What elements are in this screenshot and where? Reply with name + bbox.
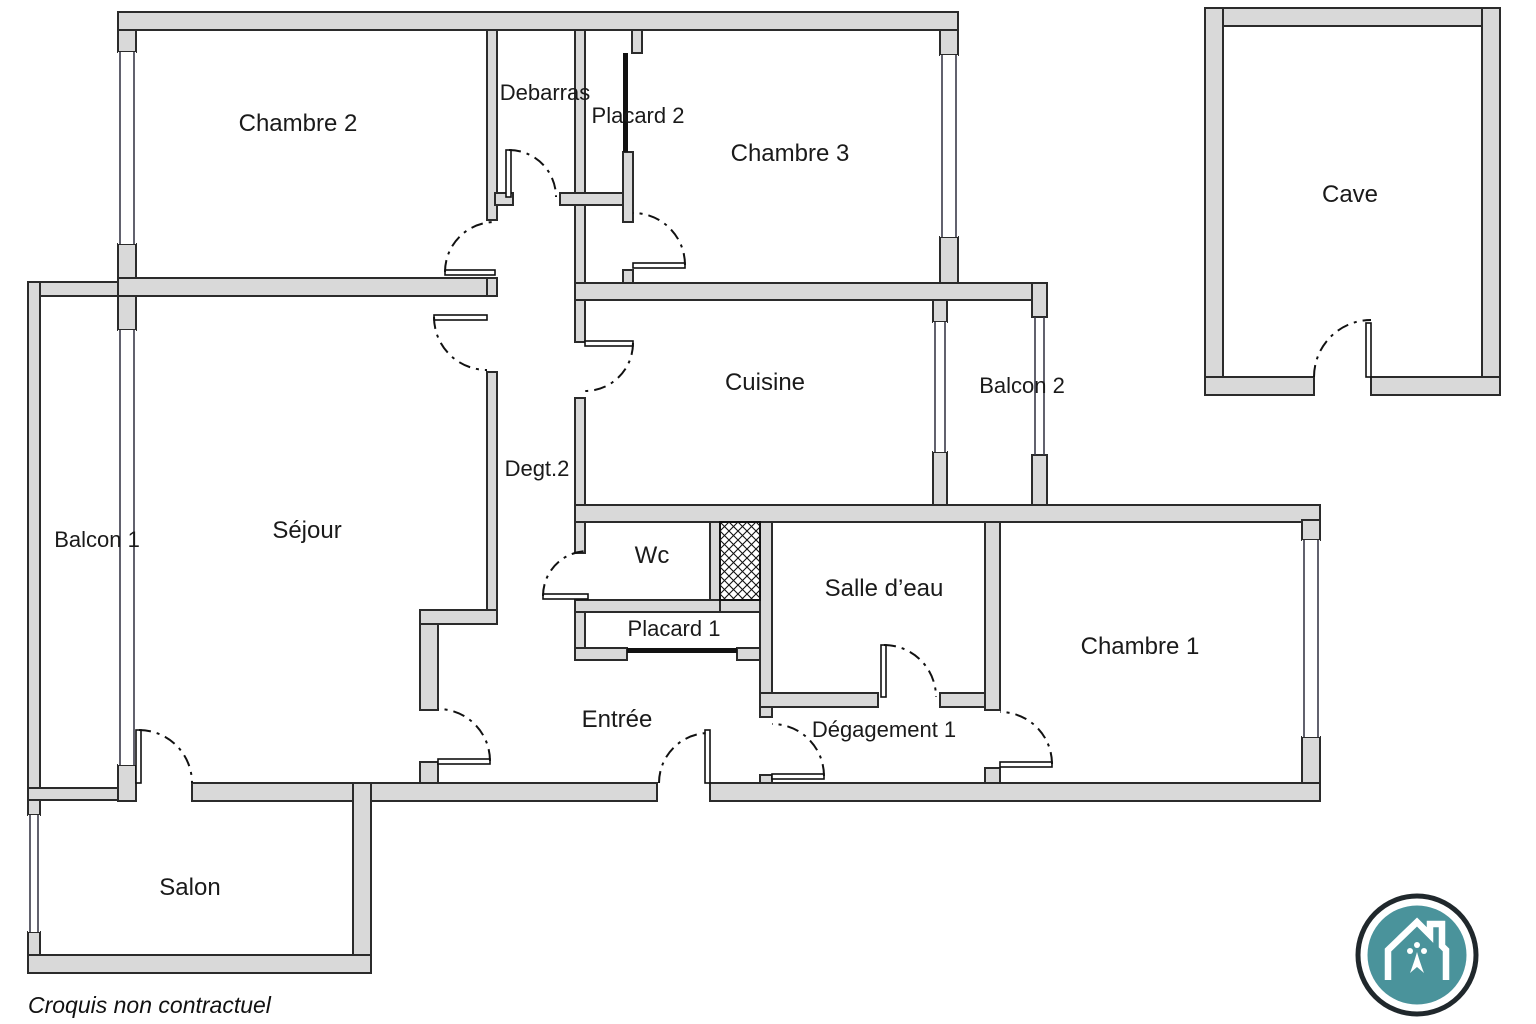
caption-croquis: Croquis non contractuel [28, 992, 272, 1018]
room-label-debarras: Debarras [500, 80, 590, 105]
window-chambre3-right [940, 55, 958, 237]
sliding-door-placard1 [627, 648, 737, 653]
door-sejour [434, 315, 487, 370]
door-salon [136, 730, 192, 783]
door-chambre3 [633, 213, 685, 268]
window-salon-left [28, 815, 40, 932]
room-label-chambre-1: Chambre 1 [1081, 633, 1200, 660]
room-label-placard-2: Placard 2 [592, 103, 685, 128]
door-chambre1 [1000, 712, 1052, 767]
door-main-entry [659, 730, 710, 783]
room-label-salle-deau: Salle d’eau [825, 575, 944, 602]
floor-plan-page: Chambre 2 Debarras Placard 2 Chambre 3 C… [0, 0, 1536, 1024]
room-label-placard-1: Placard 1 [628, 616, 721, 641]
room-label-wc: Wc [635, 542, 670, 569]
room-label-chambre-3: Chambre 3 [731, 140, 850, 167]
door-chambre2 [445, 222, 495, 275]
room-label-cuisine: Cuisine [725, 369, 805, 396]
room-label-degagement-1: Dégagement 1 [812, 717, 956, 742]
window-chambre2-left [118, 52, 136, 244]
room-label-degt-2: Degt.2 [505, 456, 570, 481]
room-label-entree: Entrée [582, 706, 653, 733]
door-cave [1314, 320, 1371, 377]
window-chambre1-right [1302, 540, 1320, 737]
floor-plan-drawing: Chambre 2 Debarras Placard 2 Chambre 3 C… [0, 0, 1536, 1024]
room-label-salon: Salon [159, 874, 220, 901]
door-debarras [506, 150, 556, 197]
door-sejour-entree [438, 709, 490, 764]
room-label-cave: Cave [1322, 181, 1378, 208]
room-label-balcon-1: Balcon 1 [54, 527, 140, 552]
agency-logo [1358, 896, 1476, 1014]
door-salle-deau [881, 645, 936, 697]
door-wc [543, 551, 588, 599]
room-label-chambre-2: Chambre 2 [239, 110, 358, 137]
window-cuisine-balcon2 [933, 322, 947, 452]
door-cuisine [585, 341, 633, 391]
room-label-balcon-2: Balcon 2 [979, 373, 1065, 398]
room-label-sejour: Séjour [272, 517, 341, 544]
room-labels: Chambre 2 Debarras Placard 2 Chambre 3 C… [54, 80, 1378, 901]
ventilation-shaft-hatch [720, 522, 760, 600]
